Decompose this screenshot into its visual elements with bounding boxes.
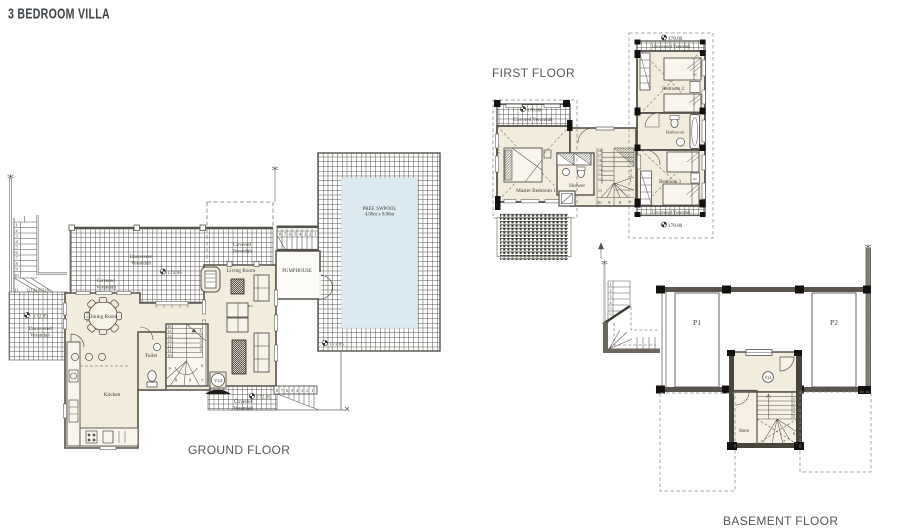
svg-text:10: 10 (167, 353, 172, 358)
svg-text:GROUND FLOOR: GROUND FLOOR (188, 443, 290, 457)
svg-text:V24: V24 (214, 378, 223, 383)
svg-text:5: 5 (16, 245, 19, 250)
svg-text:178.00: 178.00 (668, 36, 683, 42)
svg-text:Covered: Covered (97, 278, 115, 284)
svg-text:10: 10 (597, 200, 602, 205)
svg-text:Uncovered: Uncovered (129, 254, 153, 260)
svg-text:11: 11 (14, 288, 19, 293)
svg-text:1213141516: 1213141516 (26, 288, 50, 293)
svg-text:5: 5 (793, 415, 795, 419)
svg-text:6: 6 (16, 250, 19, 255)
svg-text:4: 4 (610, 300, 612, 305)
svg-text:Bedroom 2: Bedroom 2 (662, 87, 684, 92)
svg-text:6: 6 (610, 312, 612, 317)
svg-text:172.65: 172.65 (257, 395, 272, 401)
svg-text:Covered: Covered (234, 399, 252, 405)
svg-text:a.c: a.c (693, 177, 697, 181)
svg-text:FIRST FLOOR: FIRST FLOOR (492, 66, 575, 80)
svg-text:Toilet: Toilet (145, 353, 158, 359)
svg-text:4.00m x 8.00m: 4.00m x 8.00m (365, 213, 395, 218)
svg-text:171.65: 171.65 (330, 342, 345, 348)
svg-text:3: 3 (610, 294, 612, 299)
svg-text:1: 1 (16, 223, 19, 228)
svg-text:a.c: a.c (693, 73, 697, 77)
svg-text:P2: P2 (830, 318, 838, 327)
svg-text:Verandah: Verandah (30, 333, 50, 339)
svg-text:9: 9 (16, 267, 19, 272)
svg-text:3: 3 (793, 406, 795, 410)
svg-text:3: 3 (16, 234, 19, 239)
svg-text:172.95: 172.95 (168, 270, 183, 276)
svg-text:5: 5 (610, 306, 612, 311)
svg-text:Kitchen: Kitchen (104, 392, 121, 398)
svg-text:Covered Verandah: Covered Verandah (513, 117, 553, 123)
svg-text:a.c: a.c (248, 303, 253, 308)
svg-text:Bathroom: Bathroom (666, 130, 685, 135)
svg-text:Uncovered Verandah: Uncovered Verandah (652, 44, 691, 49)
svg-text:10: 10 (14, 273, 19, 278)
svg-text:Verandah: Verandah (96, 285, 116, 291)
svg-text:7: 7 (16, 256, 19, 261)
svg-text:172.95: 172.95 (34, 314, 49, 320)
svg-text:Dining Room: Dining Room (89, 314, 119, 320)
svg-text:176.00: 176.00 (527, 108, 542, 114)
svg-text:BASEMENT FLOOR: BASEMENT FLOOR (723, 514, 838, 528)
svg-text:Master Bedroom 1: Master Bedroom 1 (516, 188, 556, 194)
svg-text:V24: V24 (765, 375, 772, 380)
svg-text:12: 12 (598, 177, 603, 182)
svg-text:1: 1 (793, 397, 795, 401)
svg-text:Uncovered Verandah: Uncovered Verandah (652, 210, 691, 215)
svg-text:Covered: Covered (233, 242, 251, 248)
svg-text:Store: Store (739, 429, 749, 434)
svg-text:PUMPHOUSE: PUMPHOUSE (282, 269, 312, 274)
svg-text:3 BEDROOM VILLA: 3 BEDROOM VILLA (8, 6, 110, 22)
svg-text:4: 4 (793, 411, 795, 415)
svg-text:Living Room: Living Room (227, 268, 256, 274)
svg-text:1: 1 (610, 282, 612, 287)
svg-text:2: 2 (793, 402, 795, 406)
svg-text:Verandah: Verandah (131, 261, 151, 267)
svg-text:Bedroom 3: Bedroom 3 (659, 180, 681, 185)
svg-text:PREF. SWPOOL: PREF. SWPOOL (363, 207, 397, 212)
svg-text:Verandah: Verandah (233, 406, 253, 412)
svg-text:P1: P1 (693, 318, 701, 327)
svg-text:178.00: 178.00 (668, 223, 683, 229)
svg-text:11: 11 (598, 188, 603, 193)
svg-text:2: 2 (16, 228, 19, 233)
svg-text:Verandah: Verandah (232, 249, 252, 255)
svg-text:2: 2 (610, 288, 612, 293)
svg-text:4: 4 (16, 239, 19, 244)
svg-text:Uncovered: Uncovered (28, 326, 52, 332)
svg-text:8: 8 (16, 261, 19, 266)
